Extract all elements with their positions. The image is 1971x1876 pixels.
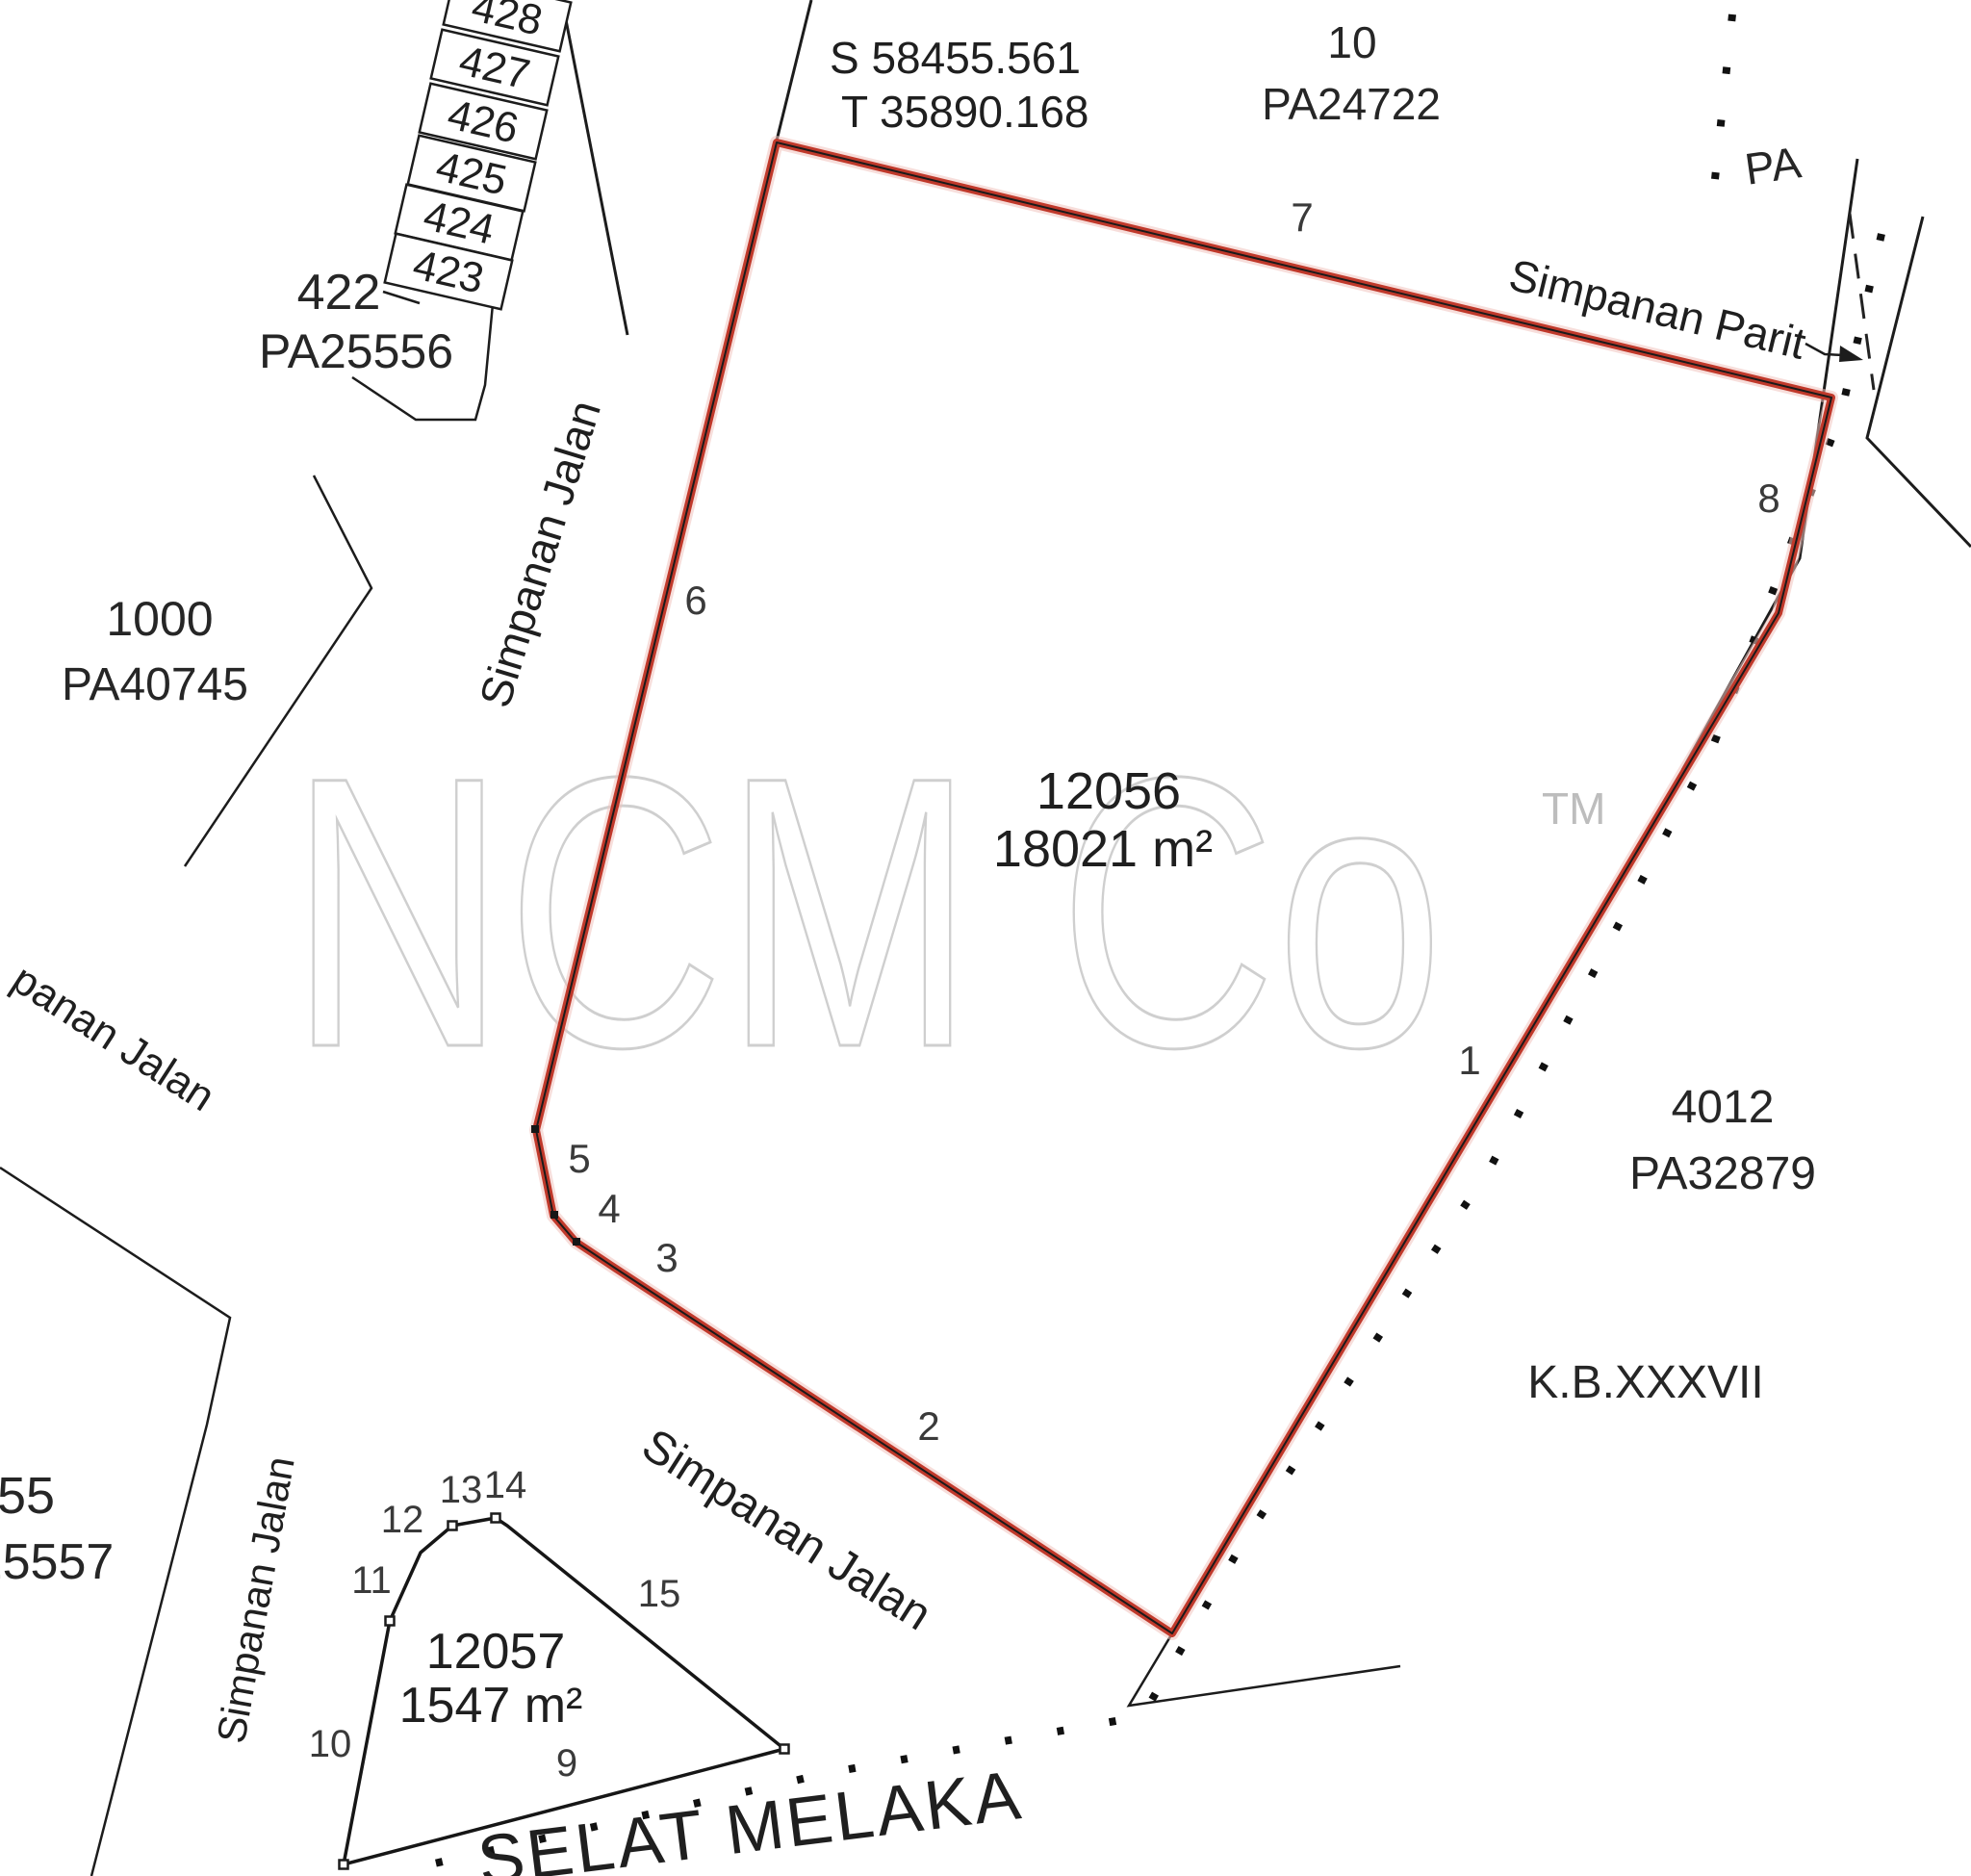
corner-coordinates: S 58455.561 T 35890.168 — [830, 33, 1089, 137]
watermark-tm: TM — [1542, 784, 1605, 834]
vertex-label-11: 11 — [351, 1559, 392, 1602]
survey-mark — [492, 1514, 500, 1523]
vertex-label-6: 6 — [684, 578, 706, 623]
road-edge-line — [561, 0, 627, 335]
drain-boundary-b — [1867, 217, 1971, 547]
vertex-label-7: 7 — [1291, 194, 1313, 240]
vertex-label-13: 13 — [440, 1469, 483, 1511]
lot4012-grant: PA32879 — [1629, 1148, 1816, 1199]
lot12056-number: 12056 — [1037, 762, 1181, 820]
vertex-label-15: 15 — [638, 1573, 681, 1615]
lot55-grant: 25557 — [0, 1534, 114, 1590]
survey-mark — [573, 1238, 580, 1246]
vertex-label-14: 14 — [484, 1464, 527, 1506]
small-lot-labels: 12057 1547 m² 9 10 11 12 13 14 15 — [309, 1464, 681, 1785]
strip-lot-stack: 428 427 426 425 424 423 — [385, 0, 572, 309]
lot4012-number: 4012 — [1672, 1082, 1775, 1133]
vertex-label-1: 1 — [1458, 1038, 1480, 1083]
survey-mark — [448, 1522, 457, 1530]
vertex-label-2: 2 — [917, 1403, 939, 1449]
survey-mark — [386, 1617, 395, 1626]
watermark: NCM Co TM — [289, 697, 1605, 1127]
lot422-leader — [383, 292, 420, 303]
coordinate-s: S 58455.561 — [830, 33, 1081, 83]
survey-mark — [531, 1125, 539, 1133]
survey-mark — [550, 1211, 558, 1219]
road-label-vertical: Simpanan Jalan — [208, 1453, 303, 1747]
lot10-number: 10 — [1327, 17, 1376, 67]
road-label-partial: panan Jalan — [4, 956, 223, 1121]
coordinate-t: T 35890.168 — [841, 87, 1089, 137]
lot12057-number: 12057 — [426, 1624, 566, 1680]
vertex-label-9: 9 — [556, 1742, 577, 1785]
lot55-number: 55 — [0, 1467, 55, 1525]
lot1000-grant: PA40745 — [62, 659, 248, 710]
dotted-line-top-right — [1713, 14, 1732, 197]
road-label-left: Simpanan Jalan — [470, 395, 610, 713]
drain-leader — [1805, 344, 1863, 362]
drain-boundary-a — [1682, 159, 1857, 770]
lot12057-area: 1547 m² — [399, 1678, 583, 1734]
south-corner-ties — [1129, 1633, 1400, 1706]
survey-plan-canvas: NCM Co TM 428 427 426 — [0, 0, 1971, 1876]
north-boundary-leader — [777, 0, 811, 141]
section-label: K.B.XXXVII — [1527, 1357, 1763, 1408]
survey-mark — [781, 1745, 789, 1754]
partial-grant-label: PA — [1742, 137, 1805, 194]
drain-leader-line — [1805, 344, 1844, 355]
vertex-label-8: 8 — [1757, 475, 1779, 521]
arrow-icon — [1839, 346, 1863, 362]
cadastral-map-page: NCM Co TM 428 427 426 — [0, 0, 1971, 1876]
lot422-number: 422 — [297, 265, 381, 321]
vertex-label-10: 10 — [309, 1723, 352, 1765]
vertex-label-3: 3 — [655, 1235, 678, 1280]
lot12056-area: 18021 m² — [993, 820, 1213, 878]
vertex-label-12: 12 — [381, 1499, 424, 1541]
lot10-grant: PA24722 — [1262, 79, 1441, 129]
strip-lot-number: 427 — [455, 37, 535, 98]
vertex-label-4: 4 — [598, 1186, 620, 1231]
watermark-text: NCM Co — [289, 697, 1444, 1127]
lot1000-number: 1000 — [106, 592, 213, 646]
survey-mark — [340, 1861, 348, 1869]
lot422-grant: PA25556 — [259, 324, 453, 378]
vertex-label-5: 5 — [568, 1136, 590, 1181]
drain-dashed-line — [1850, 214, 1874, 390]
